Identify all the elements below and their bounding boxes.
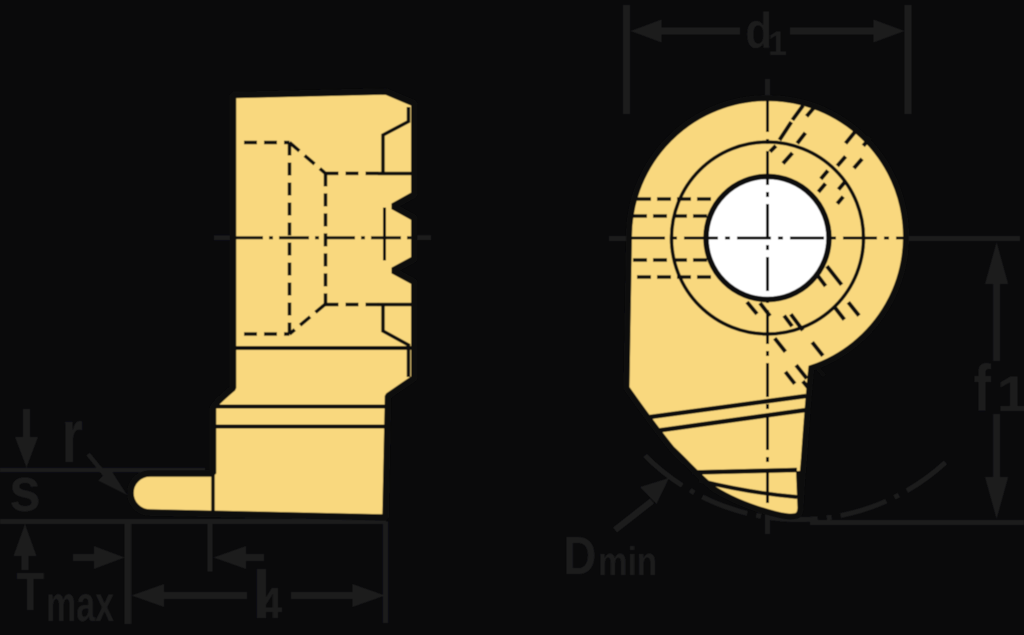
svg-text:1: 1 [997, 367, 1024, 423]
svg-text:max: max [46, 577, 114, 633]
svg-text:1: 1 [768, 25, 787, 63]
svg-text:min: min [598, 539, 657, 584]
svg-text:4: 4 [259, 579, 282, 628]
svg-text:r: r [62, 395, 84, 480]
svg-text:f: f [973, 351, 992, 425]
svg-text:s: s [9, 455, 41, 525]
svg-text:D: D [563, 526, 596, 586]
svg-text:T: T [16, 562, 44, 622]
